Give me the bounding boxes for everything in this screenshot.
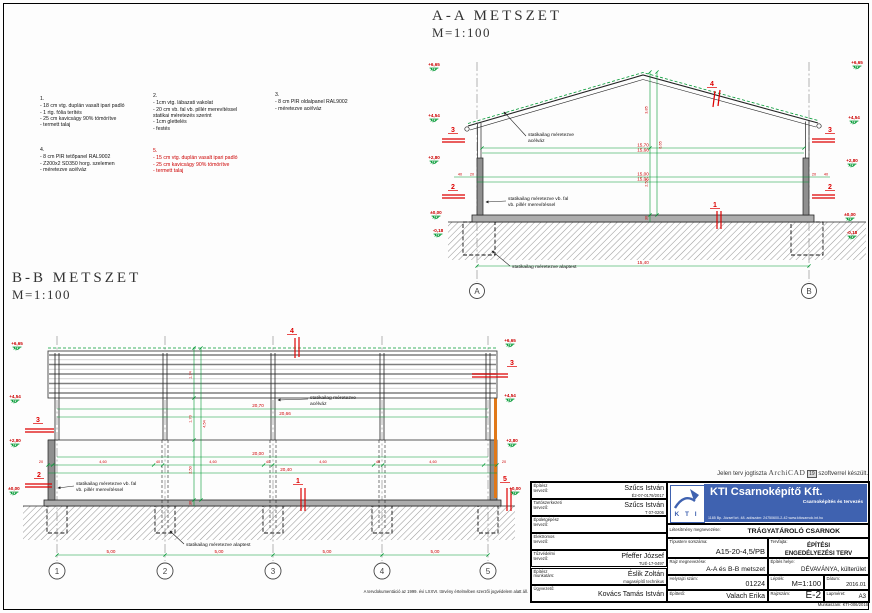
level-marker: ±0,00 <box>844 212 856 221</box>
archicad-note: Jelen terv jogtiszta ArchiCAD 19 szoftve… <box>640 468 868 478</box>
dim-label: 40 <box>458 173 462 177</box>
plan-kind: ÉPÍTÉSI ENGEDÉLYEZÉSI TERV <box>769 543 868 558</box>
wall-panel-left <box>478 123 482 158</box>
level-marker: +4,54 <box>428 113 440 122</box>
end-wall-left <box>48 440 55 500</box>
level-marker: +2,80 <box>506 438 518 447</box>
company-tagline: Csarnoképítés és tervezés <box>803 500 863 505</box>
bay-dim: 4,60 <box>429 460 436 464</box>
title-block: Építésztervező: Szűcs István É2-07-0179/… <box>530 481 870 603</box>
level-marker: +6,65 <box>851 60 863 69</box>
svg-text:2: 2 <box>451 184 455 191</box>
parcel-number: 01224 <box>746 581 765 588</box>
svg-text:5: 5 <box>503 476 507 483</box>
gutter-right <box>817 124 821 128</box>
titleblock-row-structural: Tartószerkezetitervező: Szűcs István T 0… <box>531 499 667 516</box>
scale-cell: Lépték: M=1:100 <box>768 575 824 590</box>
svg-text:1: 1 <box>296 478 300 485</box>
vdim-label: 6,65 <box>659 141 663 148</box>
grid-bubble-a: A <box>470 284 485 299</box>
wall-label: statikailag méretezve vb. fal <box>508 196 568 202</box>
bay-dim: 4,60 <box>319 460 326 464</box>
bay-dim: 40 <box>266 460 270 464</box>
leader-roof <box>278 399 308 400</box>
grid-bubble-1: 1 <box>49 563 65 579</box>
dim-label: 15,40 <box>637 260 649 265</box>
svg-text:B: B <box>806 287 811 296</box>
leader-roof <box>504 112 526 136</box>
drawing-number: E-2 <box>805 590 821 601</box>
company-banner: KTI Csarnoképítő Kft. Csarnoképítés és t… <box>704 484 867 522</box>
roof-panel-dashes <box>468 73 818 124</box>
roof-label: statikailag méretezve <box>528 132 574 138</box>
level-marker: +6,65 <box>504 338 516 347</box>
company-address: 1185 Bp. József krt. 48. adószám: 247506… <box>708 516 865 520</box>
vdim-label: 2,50 <box>189 466 193 473</box>
wall-label: vb. pillér merevítéssel <box>508 202 555 208</box>
note-2: 2. - 1cm vtg. lábazati vakolat - 20 cm v… <box>153 93 268 132</box>
archicad-logo: ArchiCAD <box>768 468 805 477</box>
note-number: 2. <box>153 93 268 99</box>
svg-text:±0,00: ±0,00 <box>8 486 20 491</box>
bay-dim: 20 <box>502 460 506 464</box>
work-number: Munkaszám: KTI-006/2016 <box>700 602 868 607</box>
client-name: Valach Erika <box>726 593 765 600</box>
dim-label: 40 <box>824 173 828 177</box>
floor-slab <box>44 500 501 506</box>
vdim-label: 4,54 <box>203 420 207 427</box>
section-aa-drawing: 15,70 15,66 15,00 15,06 15,40 40 20 20 4… <box>420 50 870 305</box>
drawing-name: A-A és B-B metszet <box>706 566 765 573</box>
vdim-label: 1,74 <box>189 371 193 378</box>
dim-label: 20,66 <box>279 411 291 416</box>
section-bb-title: B-B METSZET M=1:100 <box>12 270 141 303</box>
svg-text:+4,54: +4,54 <box>9 394 21 399</box>
roof-line <box>468 75 818 126</box>
svg-text:A: A <box>474 287 480 296</box>
svg-text:±0,00: ±0,00 <box>844 212 856 217</box>
titleblock-row-fire: Tűzvédelmitervező: Pfeffer József TUÉ-17… <box>531 550 667 567</box>
section-bb-drawing: 20,70 20,66 20,00 20,40 20 4,60 40 4,60 … <box>8 318 533 596</box>
type-cell: Típusterv sorszáma: A15-20-4,5/PB <box>667 538 768 558</box>
foundation-label: statikailag méretezve alaptest <box>512 264 577 270</box>
svg-text:+6,65: +6,65 <box>504 338 516 343</box>
section-aa-title: A-A METSZET M=1:100 <box>432 8 562 41</box>
svg-text:2: 2 <box>37 472 41 479</box>
level-marker: +2,80 <box>428 155 440 164</box>
grid-bubble-4: 4 <box>374 563 390 579</box>
svg-text:+4,54: +4,54 <box>428 113 440 118</box>
bay-dim: 4,60 <box>209 460 216 464</box>
level-marker: +4,54 <box>9 394 21 403</box>
level-marker: +2,80 <box>9 438 21 447</box>
svg-text:-0,18: -0,18 <box>847 230 858 235</box>
note-1: 1. - 18 cm vtg. duplán vasalt ipari padl… <box>40 96 155 129</box>
detail-marker-3-left: 3 <box>442 127 465 142</box>
svg-text:+2,80: +2,80 <box>9 438 21 443</box>
wall-left <box>477 158 483 215</box>
wall-label: vb. pillér merevítéssel <box>76 487 123 493</box>
svg-text:2: 2 <box>828 184 832 191</box>
detail-marker-2-right: 2 <box>812 184 835 198</box>
dim-label: 20,00 <box>252 451 264 456</box>
copyright-note: A tervdokumentáció az 1999. évi LXXVI. t… <box>322 589 528 594</box>
note-number: 1. <box>40 96 155 102</box>
svg-text:-0,18: -0,18 <box>433 228 444 233</box>
svg-text:1: 1 <box>55 567 60 576</box>
grid-bubble-5: 5 <box>480 563 496 579</box>
dim-label: 20,70 <box>252 403 264 408</box>
dim-label: 20 <box>470 173 474 177</box>
level-marker: +4,54 <box>504 393 516 402</box>
titleblock-row-mep: Épületgépésztervező: <box>531 516 667 533</box>
vdim-label: 1,70 <box>189 415 193 422</box>
detail-marker-2-left: 2 <box>442 184 465 198</box>
svg-text:5: 5 <box>486 567 491 576</box>
level-marker: +2,80 <box>846 158 858 167</box>
ground-hatch <box>23 506 515 540</box>
facility-name: TRÁGYATÁROLÓ CSARNOK <box>747 528 840 535</box>
svg-text:+2,80: +2,80 <box>506 438 518 443</box>
site-cell: Építés helye: DÉVAVÁNYA, külterület <box>768 558 869 575</box>
note-number: 4. <box>40 147 155 153</box>
frame-label: statikailag méretezve <box>310 395 356 401</box>
svg-text:+6,65: +6,65 <box>11 341 23 346</box>
roof-line-inner <box>470 80 816 131</box>
wall-panel-right <box>806 121 810 158</box>
kti-logo: K T I <box>670 485 705 523</box>
parcel-cell: Helyrajzi szám: 01224 <box>667 575 768 590</box>
svg-text:3: 3 <box>828 127 832 134</box>
svg-text:4: 4 <box>380 567 385 576</box>
level-marker: ±0,00 <box>430 210 442 219</box>
frame-label: acélváz <box>310 401 327 407</box>
titleblock-row-electrical: Elektromostervező: <box>531 533 667 550</box>
detail-marker-3-right: 3 <box>812 127 835 142</box>
svg-text:1: 1 <box>713 202 717 209</box>
ground-hatch <box>448 222 866 260</box>
svg-text:3: 3 <box>36 417 40 424</box>
vdim-label: 30 <box>645 216 649 220</box>
titleblock-row-assistant: Építészmunkatárs: Éslik Zoltán magasépít… <box>531 568 667 585</box>
svg-text:3: 3 <box>510 360 514 367</box>
titleblock-row-ceo: Ügyvezető: Kovács Tamás István <box>531 585 667 602</box>
vdim-label: 30 <box>189 501 193 505</box>
svg-text:3: 3 <box>271 567 276 576</box>
sheet-size: A3 <box>859 594 866 600</box>
type-number: A15-20-4,5/PB <box>716 547 765 556</box>
bay-dim: 4,60 <box>99 460 106 464</box>
downspout-pipe <box>494 384 497 498</box>
svg-text:+6,65: +6,65 <box>428 62 440 67</box>
titleblock-row-architect: Építésztervező: Szűcs István É2-07-0179/… <box>531 482 667 499</box>
date-cell: Dátum: 2016.01 <box>824 575 869 590</box>
svg-text:4: 4 <box>290 328 294 335</box>
detail-marker-3-left: 3 <box>25 417 54 432</box>
drawno-cell: Rajzszám: E-2 <box>768 590 824 602</box>
note-3: 3. - 8 cm PIR oldalpanel RAL9002 - méret… <box>275 92 390 112</box>
wall-label: statikailag méretezve vb. fal <box>76 481 136 487</box>
date-value: 2016.01 <box>846 582 866 588</box>
grid-dim: 5,00 <box>431 549 440 554</box>
gutter-left <box>465 127 469 131</box>
bay-dim: 40 <box>376 460 380 464</box>
svg-text:+6,65: +6,65 <box>851 60 863 65</box>
svg-text:4: 4 <box>710 81 714 88</box>
level-marker: +4,54 <box>848 115 860 124</box>
section-aa-scale: M=1:100 <box>432 25 562 41</box>
note-4: 4. - 8 cm PIR tetőpanel RAL9002 - Z200x2… <box>40 147 155 173</box>
svg-text:+2,80: +2,80 <box>846 158 858 163</box>
grid-bubble-2: 2 <box>157 563 173 579</box>
facility-row: Létesítmény megnevezése: TRÁGYATÁROLÓ CS… <box>667 524 869 538</box>
section-bb-title-text: B-B METSZET <box>12 270 141 287</box>
level-marker: +6,65 <box>428 62 440 71</box>
grid-bubble-b: B <box>802 284 817 299</box>
archicad-version-badge: 19 <box>807 470 817 478</box>
svg-text:2: 2 <box>163 567 168 576</box>
bay-dim: 40 <box>156 460 160 464</box>
vdim-label: 3,85 <box>645 106 649 113</box>
svg-text:+4,54: +4,54 <box>848 115 860 120</box>
note-5: 5. - 15 cm vtg. duplán vasalt ipari padl… <box>153 148 268 174</box>
drawing-cell: Rajz megnevezése: A-A és B-B metszet <box>667 558 768 575</box>
section-bb-scale: M=1:100 <box>12 287 141 303</box>
svg-text:+4,54: +4,54 <box>504 393 516 398</box>
bay-dim: 20 <box>39 460 43 464</box>
client-cell: Építtető: Valach Erika <box>667 590 768 602</box>
kind-cell: Tervfajta: ÉPÍTÉSI ENGEDÉLYEZÉSI TERV <box>768 538 869 558</box>
scale-value: M=1:100 <box>792 579 821 588</box>
level-marker: ±0,00 <box>8 486 20 495</box>
foundation-label: statikailag méretezve alaptest <box>186 542 251 548</box>
svg-text:+2,80: +2,80 <box>428 155 440 160</box>
company-name: KTI Csarnoképítő Kft. <box>710 486 822 498</box>
floor-slab <box>472 215 814 222</box>
grid-dim: 5,00 <box>215 549 224 554</box>
wall-right <box>803 158 809 215</box>
site-name: DÉVAVÁNYA, külterület <box>801 566 866 573</box>
leader-wall <box>58 486 74 488</box>
section-aa-title-text: A-A METSZET <box>432 8 562 25</box>
grid-dim: 5,00 <box>107 549 116 554</box>
roof-label: acélváz <box>528 138 545 144</box>
dim-label: 15,66 <box>637 148 649 153</box>
svg-text:+0,00: +0,00 <box>509 486 521 491</box>
level-marker: -0,18 <box>433 228 444 237</box>
dim-label: 20 <box>812 173 816 177</box>
grid-bubble-3: 3 <box>265 563 281 579</box>
company-logo-band: K T I KTI Csarnoképítő Kft. Csarnoképíté… <box>667 482 869 524</box>
note-number: 3. <box>275 92 390 98</box>
size-cell: Lapméret: A3 <box>824 590 869 602</box>
svg-text:±0,00: ±0,00 <box>430 210 442 215</box>
level-marker: +6,65 <box>11 341 23 350</box>
dim-label: 20,40 <box>280 467 292 472</box>
note-number: 5. <box>153 148 268 154</box>
leader-wall <box>486 201 506 202</box>
grid-dim: 5,00 <box>323 549 332 554</box>
svg-text:3: 3 <box>451 127 455 134</box>
vdim-label: 2,50 <box>645 179 649 186</box>
kti-logo-text: K T I <box>674 511 698 518</box>
